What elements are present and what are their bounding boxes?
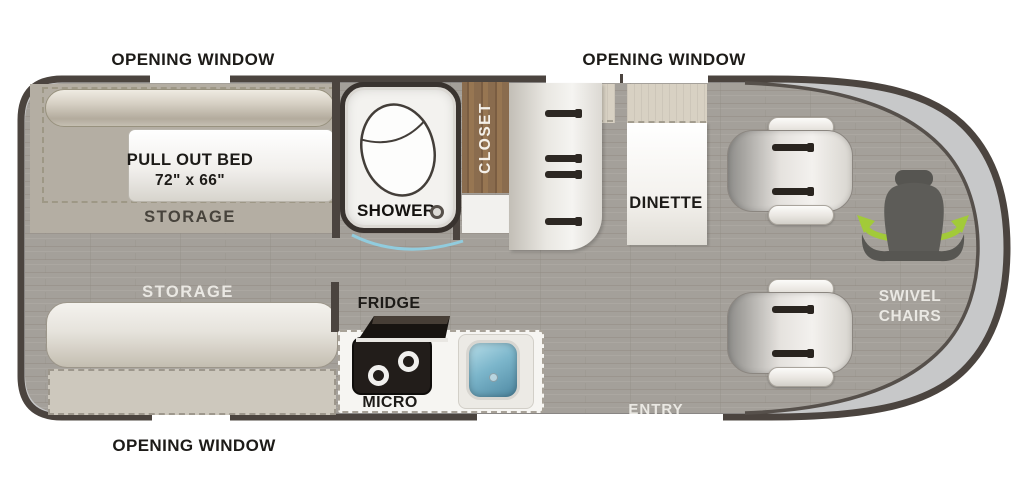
seatbelt-clip-icon (772, 144, 810, 151)
chair-armrest (768, 367, 834, 387)
seatbelt-clip-icon (772, 188, 810, 195)
closet: CLOSET (462, 82, 509, 193)
sofa-cushion (46, 302, 338, 368)
opening-window-label-front-top: OPENING WINDOW (582, 50, 745, 70)
window-divider (620, 74, 623, 83)
shower-drain-icon (430, 205, 444, 219)
seatbelt-clip-icon (772, 350, 810, 357)
rv-floorplan-diagram: SHOWER CLOSET (0, 0, 1023, 501)
pull-out-bed-name: PULL OUT BED (127, 150, 253, 171)
swivel-chairs-label: SWIVEL CHAIRS (879, 287, 941, 327)
swivel-chairs-line1: SWIVEL (879, 287, 941, 307)
pull-out-bed-size: 72" x 66" (127, 171, 253, 190)
van-shell-layer (0, 0, 1023, 501)
burner-icon (368, 365, 389, 386)
window-gap-bottom (152, 414, 230, 423)
window-gap-front-top (546, 74, 708, 83)
swivel-chair-driver (727, 279, 853, 387)
drawer-handle-icon (545, 171, 578, 178)
pull-out-bed-label: PULL OUT BED 72" x 66" (127, 150, 253, 190)
wall-partition-shower-left (332, 80, 340, 238)
closet-floor (462, 195, 509, 233)
bed-bolster-cushion (45, 89, 335, 127)
dinette-bench (627, 123, 707, 245)
dinette-overhead-outline (628, 85, 706, 123)
storage-label-front: STORAGE (142, 283, 234, 302)
swivel-rotation-icon (857, 170, 969, 261)
storage-label-rear: STORAGE (144, 208, 236, 227)
swivel-chair-passenger (727, 117, 853, 225)
wall-partition-galley (331, 282, 339, 332)
shower-door-arc (352, 235, 463, 249)
chair-seat (727, 130, 853, 212)
drawer-cabinet (509, 83, 602, 250)
entry-door-gap (477, 414, 723, 423)
opening-window-label-bottom: OPENING WINDOW (112, 436, 275, 456)
closet-label: CLOSET (477, 102, 495, 174)
chair-seat (727, 292, 853, 374)
drawer-handle-icon (545, 110, 578, 117)
opening-window-label-rear-top: OPENING WINDOW (111, 50, 274, 70)
seatbelt-clip-icon (772, 306, 810, 313)
dinette-label: DINETTE (629, 194, 702, 213)
window-gap-rear-top (150, 74, 230, 83)
burner-icon (398, 351, 419, 372)
drawer-handle-icon (545, 218, 578, 225)
cooktop-icon (352, 337, 432, 395)
icons-layer (0, 0, 1023, 501)
sink-icon (466, 340, 520, 400)
chair-armrest (768, 205, 834, 225)
swivel-chairs-line2: CHAIRS (879, 307, 941, 327)
drawer-handle-icon (545, 155, 578, 162)
shower-label: SHOWER (357, 201, 435, 221)
sink-drain-icon (489, 373, 498, 382)
entry-label: ENTRY (628, 401, 683, 418)
shower-stall: SHOWER (340, 82, 461, 233)
fridge-label: FRIDGE (358, 295, 421, 313)
micro-label: MICRO (362, 394, 417, 412)
sofa-storage-base (48, 369, 336, 415)
